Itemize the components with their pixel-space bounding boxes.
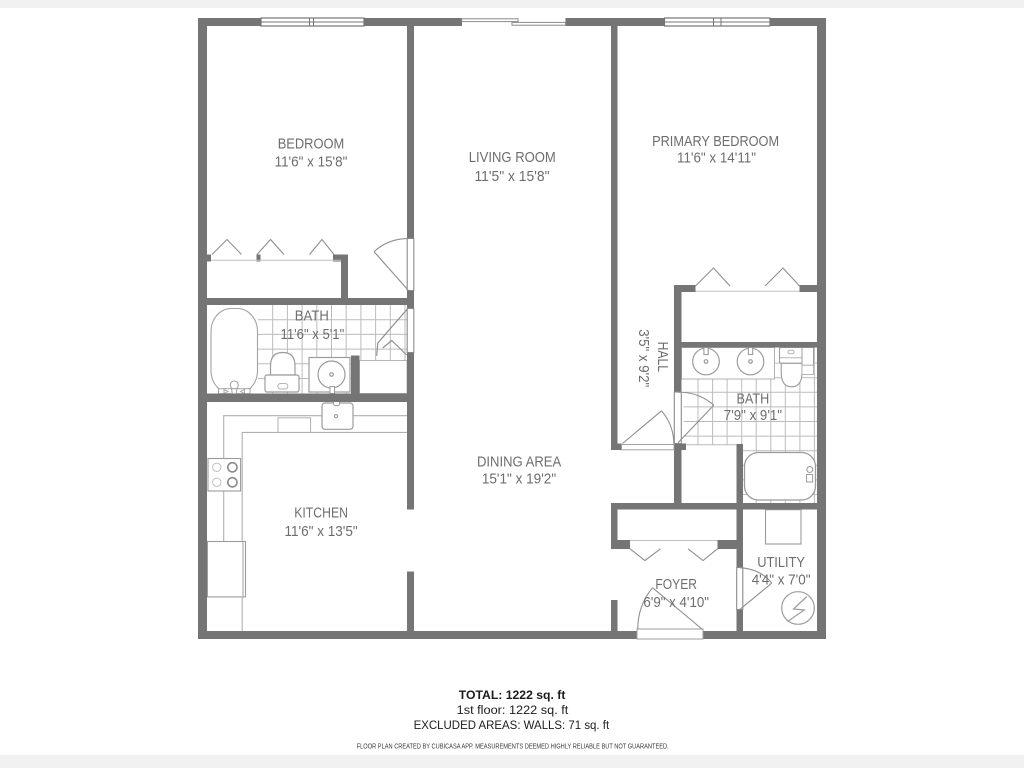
svg-text:DINING AREA: DINING AREA <box>477 454 561 470</box>
svg-text:BATH: BATH <box>737 391 770 407</box>
svg-text:7'9" x 9'1": 7'9" x 9'1" <box>724 408 782 424</box>
svg-text:11'6" x 14'11": 11'6" x 14'11" <box>677 151 756 167</box>
svg-text:HALL: HALL <box>654 342 670 372</box>
svg-text:LIVING ROOM: LIVING ROOM <box>469 150 556 166</box>
svg-text:4'4" x 7'0": 4'4" x 7'0" <box>752 573 811 589</box>
svg-text:15'1" x 19'2": 15'1" x 19'2" <box>482 472 556 488</box>
svg-text:11'6" x 13'5": 11'6" x 13'5" <box>284 524 357 540</box>
svg-text:11'6" x 5'1": 11'6" x 5'1" <box>281 327 345 343</box>
svg-text:BEDROOM: BEDROOM <box>278 137 345 153</box>
svg-text:UTILITY: UTILITY <box>757 555 805 571</box>
svg-text:EXCLUDED AREAS: WALLS: 71 sq.: EXCLUDED AREAS: WALLS: 71 sq. ft <box>414 720 610 732</box>
svg-text:FOYER: FOYER <box>655 577 697 593</box>
svg-text:FLOOR PLAN CREATED BY CUBICASA: FLOOR PLAN CREATED BY CUBICASA APP. MEAS… <box>357 741 669 750</box>
svg-text:1st floor: 1222 sq. ft: 1st floor: 1222 sq. ft <box>457 705 570 717</box>
svg-text:TOTAL: 1222 sq. ft: TOTAL: 1222 sq. ft <box>459 690 566 702</box>
svg-text:PRIMARY BEDROOM: PRIMARY BEDROOM <box>652 134 779 150</box>
svg-text:11'5" x 15'8": 11'5" x 15'8" <box>475 169 550 185</box>
svg-text:KITCHEN: KITCHEN <box>294 506 348 522</box>
svg-text:11'6" x 15'8": 11'6" x 15'8" <box>275 155 348 171</box>
svg-text:6'9" x 4'10": 6'9" x 4'10" <box>643 595 709 611</box>
svg-text:3'5" x 9'2": 3'5" x 9'2" <box>635 329 651 387</box>
svg-text:BATH: BATH <box>295 308 329 324</box>
